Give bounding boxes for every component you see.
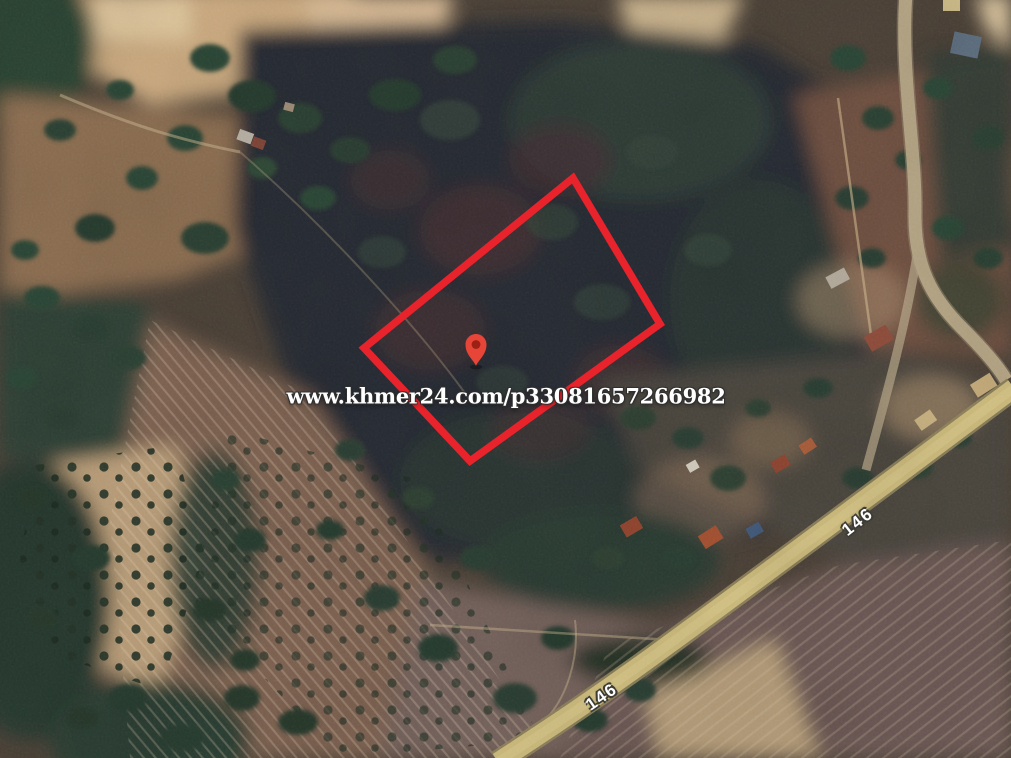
satellite-imagery	[0, 0, 1011, 758]
mottle-texture	[0, 0, 1011, 758]
satellite-map: www.khmer24.com/p33081657266982 146 146	[0, 0, 1011, 758]
pin-inner-dot	[472, 340, 481, 349]
